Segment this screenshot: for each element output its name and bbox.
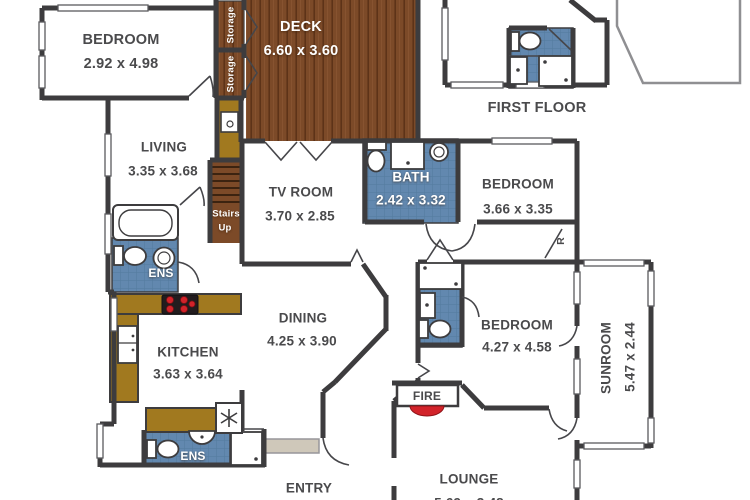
floor-plan-drawing xyxy=(0,0,750,500)
balcony-outline xyxy=(617,0,740,83)
room-label-ensuite2: ENS xyxy=(180,450,205,462)
label-storage-lower: Storage xyxy=(226,56,236,93)
first-floor-label: FIRST FLOOR xyxy=(488,101,587,116)
laundry-tub-icon xyxy=(216,403,242,433)
fridge-icon xyxy=(118,326,137,363)
room-label-ensuite1: ENS xyxy=(148,267,173,279)
room-dims-living: 3.35 x 3.68 xyxy=(128,164,198,178)
robe-label: R xyxy=(556,237,567,245)
cooktop-icon xyxy=(162,295,198,314)
room-dims-dining: 4.25 x 3.90 xyxy=(267,334,337,348)
room-dims-bedroom2: 3.66 x 3.35 xyxy=(483,202,553,216)
stairs-label-line1: Stairs xyxy=(212,209,240,219)
label-storage-upper: Storage xyxy=(226,7,236,44)
floor-plan: BEDROOM 2.92 x 4.98 DECK 6.60 x 3.60 Sto… xyxy=(0,0,750,500)
fireplace-label: FIRE xyxy=(413,390,441,402)
room-label-bath: BATH xyxy=(392,170,429,184)
room-dims-sunroom: 5.47 x 2.44 xyxy=(623,322,637,392)
washer-icon xyxy=(221,112,238,132)
room-label-bedroom3: BEDROOM xyxy=(481,318,553,332)
room-label-living: LIVING xyxy=(141,140,187,154)
entry-label: ENTRY xyxy=(286,481,332,495)
room-label-deck: DECK xyxy=(280,20,322,35)
room-dims-bedroom1: 2.92 x 4.98 xyxy=(84,57,159,72)
room-dims-bedroom3: 4.27 x 4.58 xyxy=(482,340,552,354)
room-label-tv-room: TV ROOM xyxy=(269,185,333,199)
room-dims-tv-room: 3.70 x 2.85 xyxy=(265,209,335,223)
deck-floor xyxy=(246,0,418,141)
room-dims-deck: 6.60 x 3.60 xyxy=(264,44,339,59)
stairs-label-line2: Up xyxy=(218,223,231,233)
room-dims-lounge: 5.69 x 3.48 xyxy=(434,496,504,500)
room-label-lounge: LOUNGE xyxy=(440,472,499,486)
room-dims-bath: 2.42 x 3.32 xyxy=(376,193,446,207)
entry-porch xyxy=(262,439,319,453)
bathtub-icon xyxy=(113,205,178,240)
room-label-bedroom1: BEDROOM xyxy=(82,33,159,48)
room-label-dining: DINING xyxy=(279,311,327,325)
room-label-sunroom: SUNROOM xyxy=(599,322,613,394)
room-dims-kitchen: 3.63 x 3.64 xyxy=(153,367,223,381)
room-label-bedroom2: BEDROOM xyxy=(482,177,554,191)
room-label-kitchen: KITCHEN xyxy=(157,345,218,359)
